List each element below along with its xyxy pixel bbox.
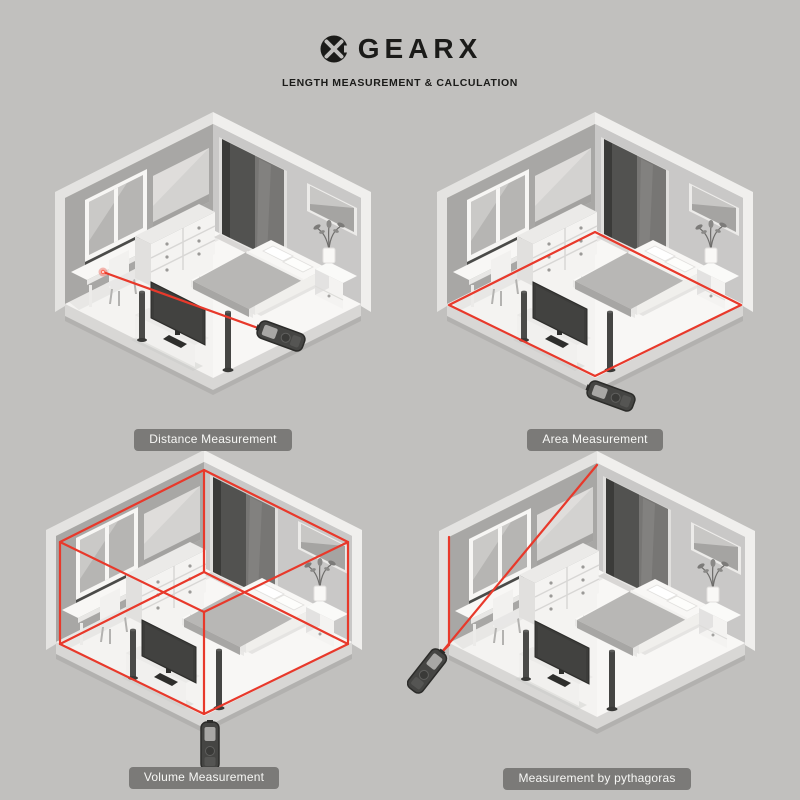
room-illustration-pythagoras	[407, 449, 787, 769]
page-subtitle: LENGTH MEASUREMENT & CALCULATION	[0, 77, 800, 89]
isometric-room	[55, 112, 371, 395]
laser-measure-device-icon	[201, 720, 219, 768]
panel-pythagoras-measurement: Measurement by pythagoras	[407, 449, 787, 790]
panel-label-area: Area Measurement	[527, 429, 662, 451]
panel-area-measurement: Area Measurement	[405, 110, 785, 451]
panel-label-distance: Distance Measurement	[134, 429, 291, 451]
isometric-room	[437, 112, 753, 395]
gearx-logo-icon	[318, 33, 350, 65]
panel-label-pythagoras: Measurement by pythagoras	[503, 768, 690, 790]
brand-name: GEARX	[358, 33, 483, 65]
header: GEARX LENGTH MEASUREMENT & CALCULATION	[0, 30, 800, 89]
gearx-infographic: GEARX LENGTH MEASUREMENT & CALCULATION D…	[0, 0, 800, 800]
panel-label-volume: Volume Measurement	[129, 767, 279, 789]
room-illustration-volume	[14, 448, 394, 768]
laser-measure-device-icon	[407, 645, 450, 695]
brand-logo: GEARX	[0, 30, 800, 68]
room-illustration-area	[405, 110, 785, 430]
panel-volume-measurement: Volume Measurement	[14, 448, 394, 789]
isometric-room	[439, 451, 755, 734]
room-illustration-distance	[23, 110, 403, 430]
panel-distance-measurement: Distance Measurement	[23, 110, 403, 451]
